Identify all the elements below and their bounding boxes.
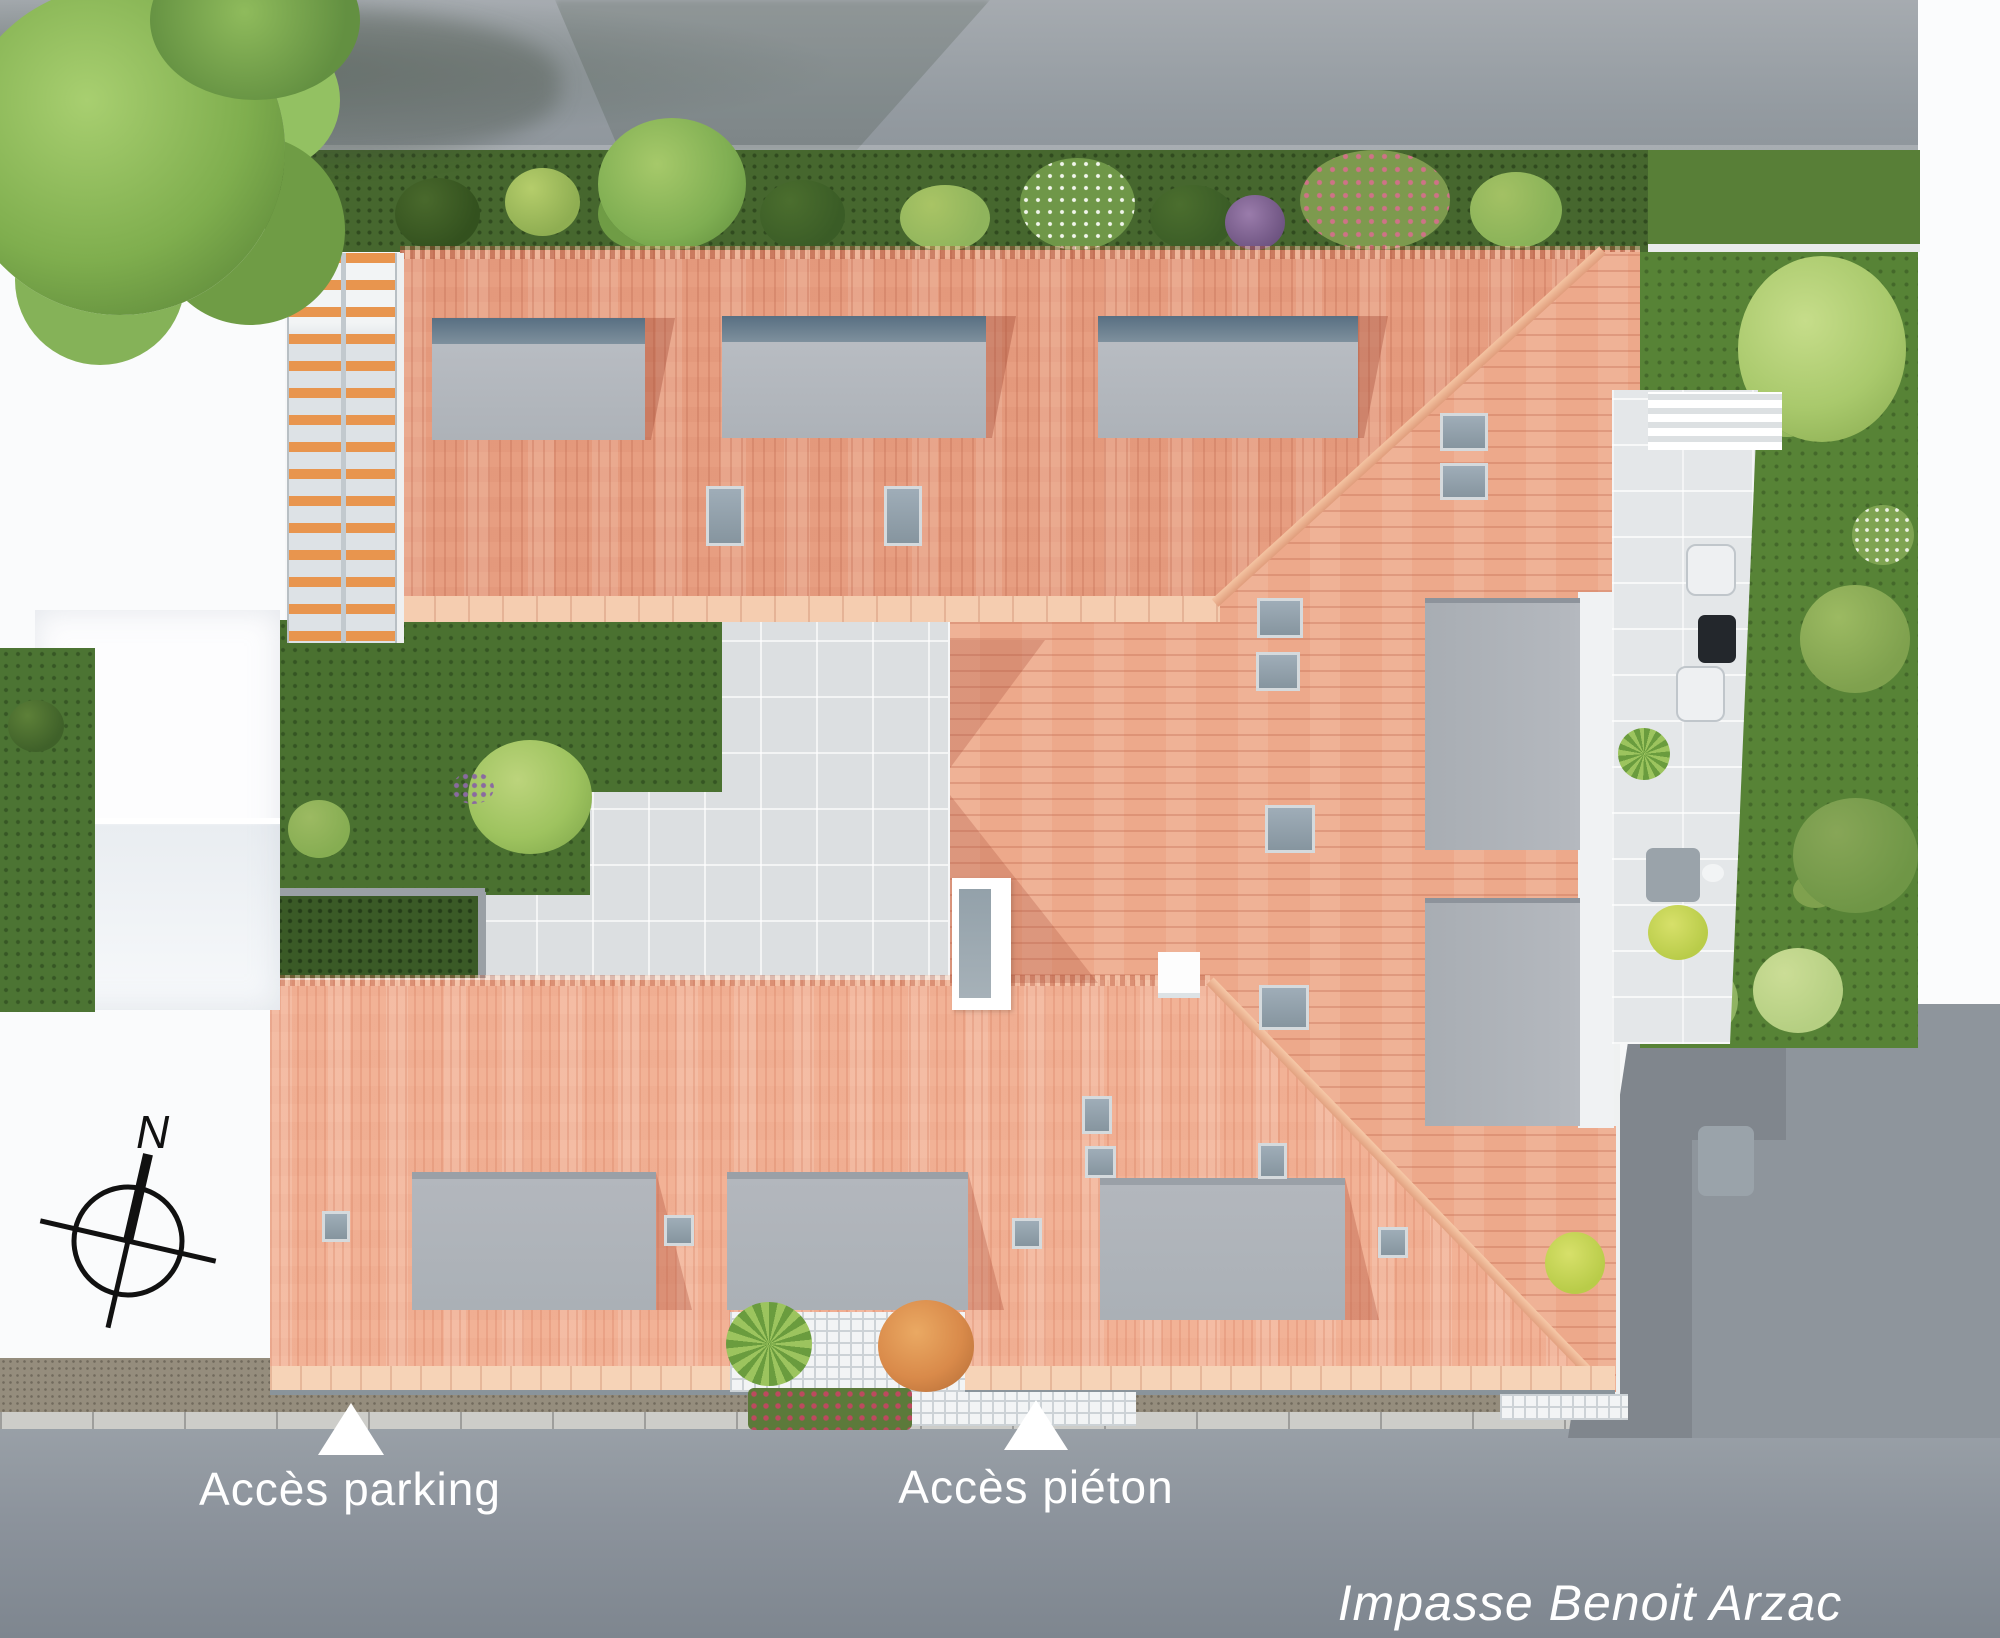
roof-terrace xyxy=(1425,598,1580,850)
roof-skylight xyxy=(1258,1143,1287,1179)
entrance-palm xyxy=(726,1302,812,1386)
roof-dormer xyxy=(412,1172,656,1310)
roof-skylight xyxy=(1378,1227,1408,1258)
compass-north-label: N xyxy=(136,1106,170,1158)
roof-chimney-box xyxy=(952,878,1011,1010)
roof-skylight xyxy=(1440,413,1488,451)
parking-access-label: Accès parking xyxy=(150,1462,550,1516)
roof-skylight xyxy=(664,1215,694,1246)
garden-bush xyxy=(1852,505,1914,565)
hedge-bush-flowering xyxy=(1020,158,1135,250)
courtyard-wall-top xyxy=(265,888,485,896)
roof-chimney-box xyxy=(1158,952,1200,998)
roof-top-wing-ridge-edge xyxy=(400,246,1640,259)
garden-bush xyxy=(1800,585,1910,693)
hedge-bush-purple xyxy=(1225,195,1285,250)
roof-skylight xyxy=(706,486,744,546)
roof-edge-gap xyxy=(397,253,404,643)
courtyard-bush xyxy=(288,800,350,858)
pergola-mullion xyxy=(341,253,346,643)
roof-skylight xyxy=(1256,652,1300,691)
garden-bush xyxy=(1753,948,1843,1033)
roof-dormer xyxy=(1098,316,1358,438)
parking-access-arrow xyxy=(318,1403,384,1455)
hedge-bush xyxy=(270,185,340,245)
roof-skylight xyxy=(1085,1146,1116,1178)
hedge-strip-right xyxy=(1648,150,1920,252)
lounge-chair xyxy=(1676,666,1725,722)
terrace-palm xyxy=(1618,728,1670,780)
compass-rose: N xyxy=(28,1086,238,1346)
hedge-bush xyxy=(505,168,580,236)
entrance-tree-orange xyxy=(878,1300,974,1392)
pedestrian-access-arrow xyxy=(1004,1400,1068,1450)
roof-skylight xyxy=(884,486,922,546)
hedge-bush xyxy=(395,178,480,250)
roof-dormer xyxy=(722,316,986,438)
hedge-bush xyxy=(1150,185,1235,250)
flower-bed xyxy=(748,1388,912,1430)
dormer-window xyxy=(722,316,986,342)
roof-skylight xyxy=(1440,463,1488,500)
eave-top-wing xyxy=(400,596,1220,622)
left-garden-bush xyxy=(8,700,64,752)
building-east-wall xyxy=(1578,592,1614,1128)
roof-dormer xyxy=(727,1172,968,1310)
hedge-bush xyxy=(760,180,845,250)
pedestrian-access-label: Accès piéton xyxy=(836,1460,1236,1514)
garden-bush xyxy=(1793,798,1918,913)
roof-terrace xyxy=(1425,898,1580,1126)
courtyard-wall-side xyxy=(478,892,486,978)
roof-skylight xyxy=(1012,1218,1042,1249)
hedge-bush-pink xyxy=(1300,150,1450,250)
courtyard-hedge xyxy=(265,896,480,978)
roof-dormer xyxy=(1100,1178,1345,1320)
roof-skylight xyxy=(1257,598,1303,638)
terrace-plant-yellow xyxy=(1648,905,1708,960)
lounge-chair xyxy=(1686,544,1736,596)
compass-icon: N xyxy=(28,1086,238,1346)
dormer-window xyxy=(432,318,645,344)
east-terrace-stairs xyxy=(1648,392,1782,450)
lounge-chair-black xyxy=(1698,615,1736,663)
roof-dormer xyxy=(432,318,645,440)
pergola xyxy=(287,253,397,643)
outdoor-sofa xyxy=(1698,1126,1754,1196)
street-name-label: Impasse Benoit Arzac xyxy=(1310,1574,1870,1632)
chimney-glass xyxy=(959,889,991,998)
dormer-window xyxy=(1098,316,1358,342)
hedge-bush xyxy=(1470,172,1562,248)
right-white-parcel xyxy=(1918,0,2000,1004)
roof-skylight xyxy=(322,1211,350,1242)
site-plan: N Accès parking Accès piéton Impasse Ben… xyxy=(0,0,2000,1638)
hedge-tree xyxy=(598,118,746,250)
roof-skylight xyxy=(1259,985,1309,1030)
side-entrance-grate xyxy=(1500,1394,1628,1420)
roof-skylight xyxy=(1265,805,1315,853)
boundary-wall xyxy=(1648,244,1920,252)
roof-skylight xyxy=(1082,1096,1112,1134)
courtyard-flowers-purple xyxy=(452,772,494,804)
hedge-bush xyxy=(900,185,990,251)
roof-plant-yellow xyxy=(1545,1232,1605,1294)
outdoor-sofa xyxy=(1646,848,1700,902)
outdoor-table xyxy=(1702,864,1724,882)
